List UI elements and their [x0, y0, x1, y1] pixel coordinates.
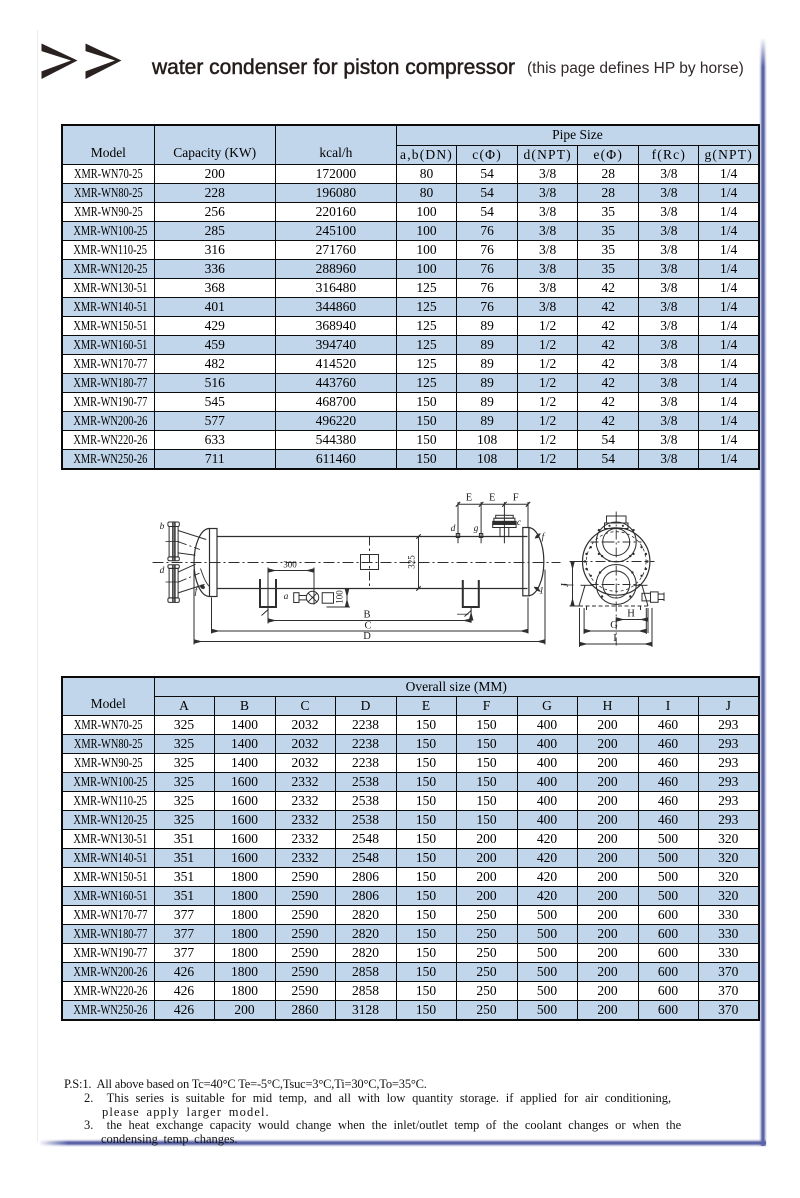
svg-text:E: E	[489, 493, 495, 504]
svg-text:c: c	[517, 518, 522, 528]
svg-text:B: B	[363, 610, 370, 621]
svg-text:f: f	[195, 586, 199, 597]
svg-text:300: 300	[283, 560, 297, 570]
svg-text:D: D	[363, 631, 371, 642]
svg-text:E: E	[466, 493, 472, 504]
svg-text:J: J	[560, 583, 571, 587]
svg-text:100: 100	[335, 590, 345, 604]
svg-text:325: 325	[407, 555, 417, 569]
svg-text:G: G	[610, 620, 618, 631]
svg-text:d: d	[160, 566, 165, 576]
svg-text:H: H	[627, 609, 635, 620]
svg-text:C: C	[364, 621, 371, 632]
svg-text:F: F	[513, 493, 519, 504]
svg-text:1: 1	[539, 587, 544, 597]
svg-text:b: b	[160, 522, 165, 532]
svg-text:d: d	[451, 524, 456, 534]
svg-text:I: I	[613, 633, 617, 644]
svg-text:g: g	[474, 524, 479, 534]
svg-text:f: f	[542, 532, 546, 543]
svg-text:a: a	[284, 592, 289, 602]
